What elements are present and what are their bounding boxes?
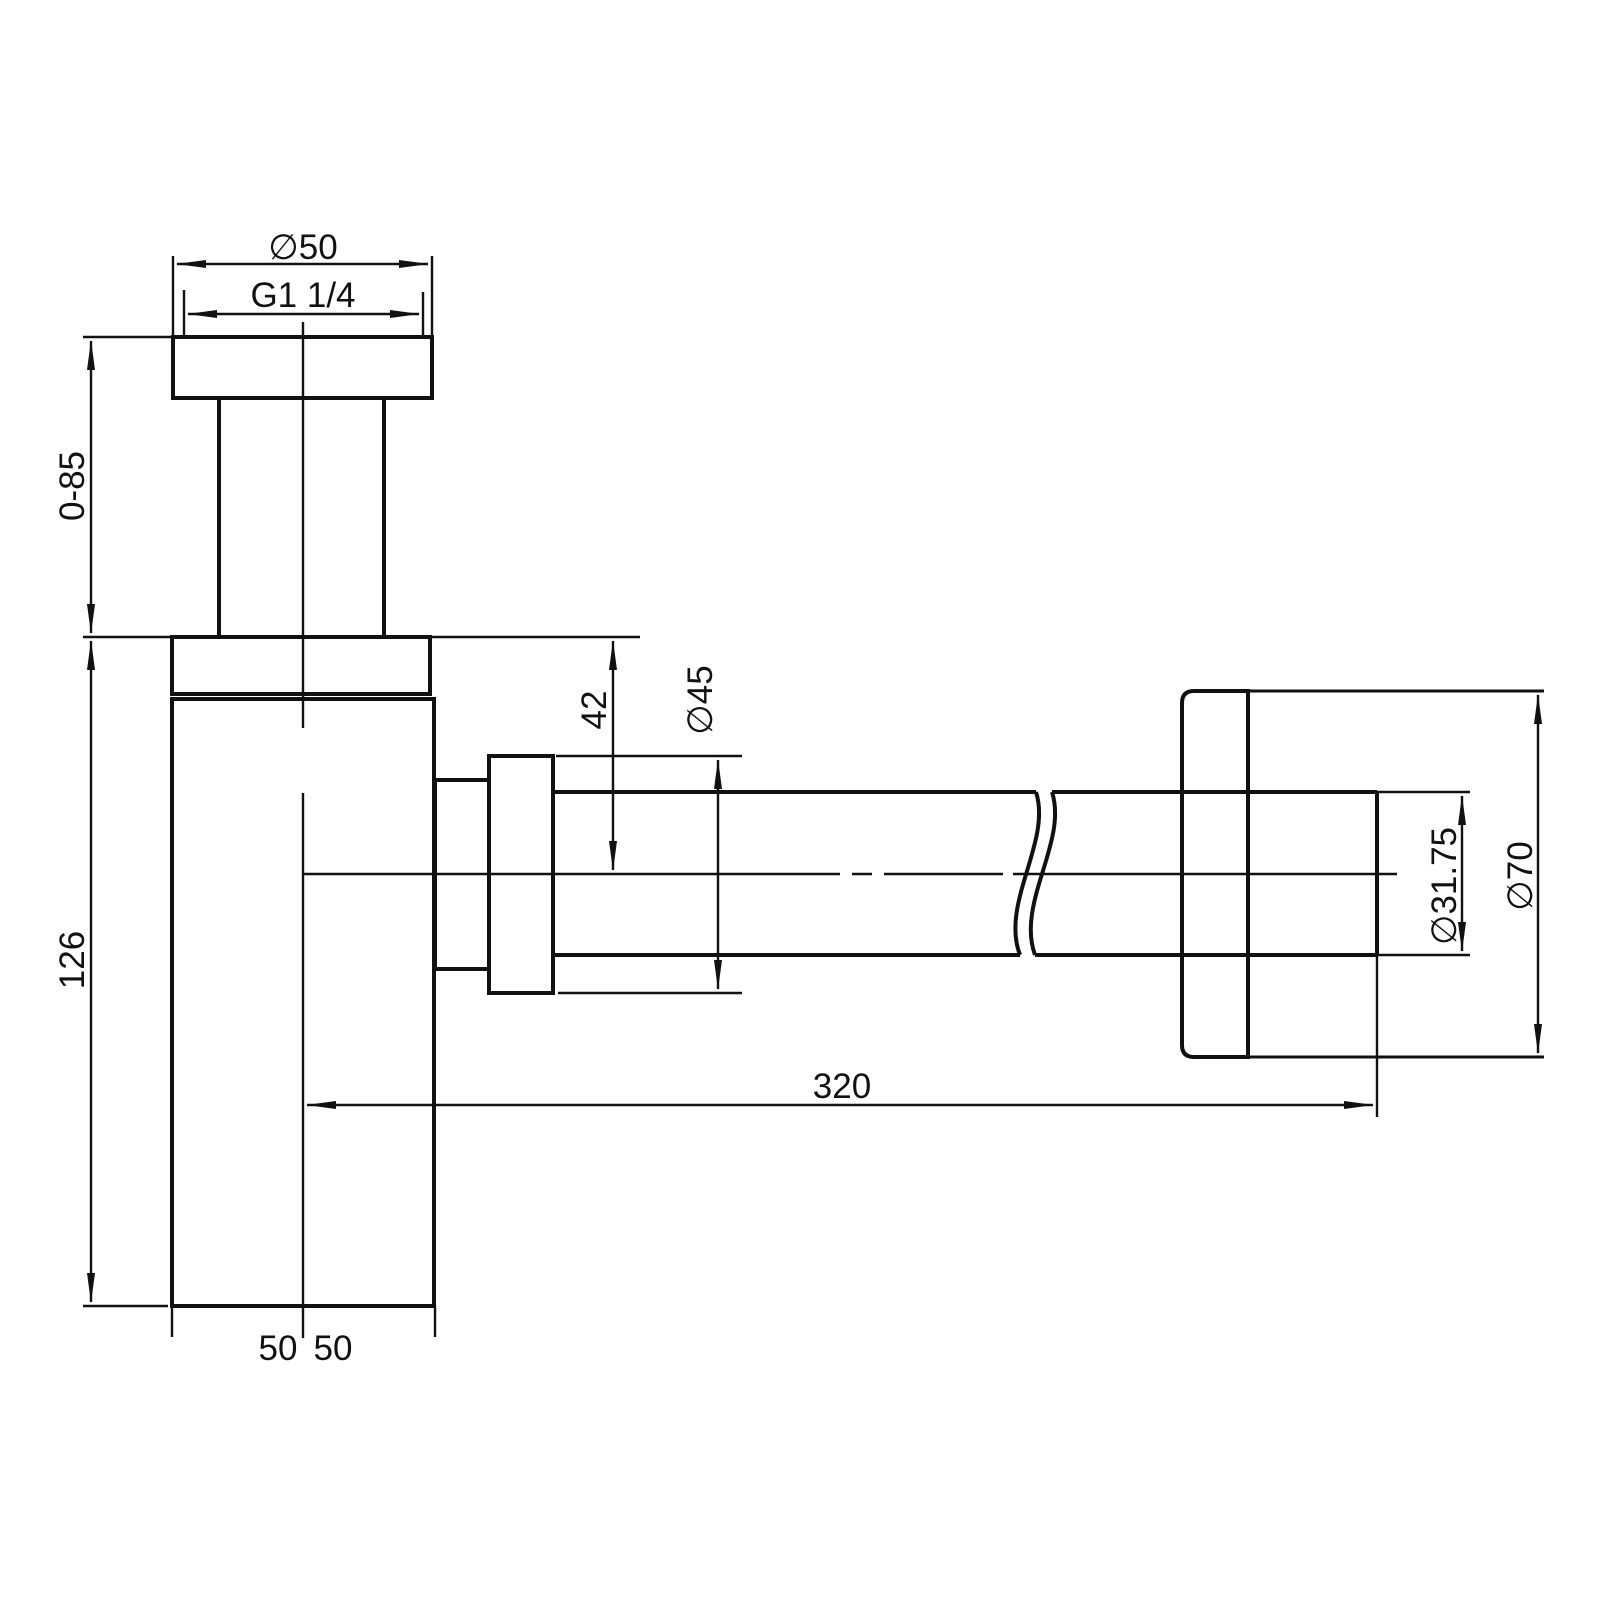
label-half-width-left: 50: [259, 1329, 298, 1368]
centerlines: [303, 322, 1397, 1338]
label-outlet-offset: 42: [575, 691, 614, 730]
dimension-lines: [91, 264, 1538, 1302]
trap-outline: [172, 337, 1544, 1306]
technical-drawing: ∅50 G1 1/4 0-85 126 42 ∅45 320 ∅31.75 ∅7…: [0, 0, 1600, 1600]
drawing-canvas: ∅50 G1 1/4 0-85 126 42 ∅45 320 ∅31.75 ∅7…: [0, 0, 1600, 1600]
label-half-width-right: 50: [314, 1329, 353, 1368]
label-nut-diameter: ∅45: [681, 665, 720, 734]
label-flange-diameter: ∅70: [1501, 841, 1540, 910]
label-pipe-length: 320: [813, 1067, 871, 1106]
label-adjustable-height: 0-85: [53, 451, 92, 521]
label-pipe-diameter: ∅31.75: [1425, 827, 1464, 945]
body-collar: [172, 637, 430, 694]
label-thread-size: G1 1/4: [250, 276, 355, 315]
extension-lines: [83, 256, 1470, 1337]
label-top-flange-diameter: ∅50: [268, 228, 337, 267]
label-body-height: 126: [53, 931, 92, 989]
